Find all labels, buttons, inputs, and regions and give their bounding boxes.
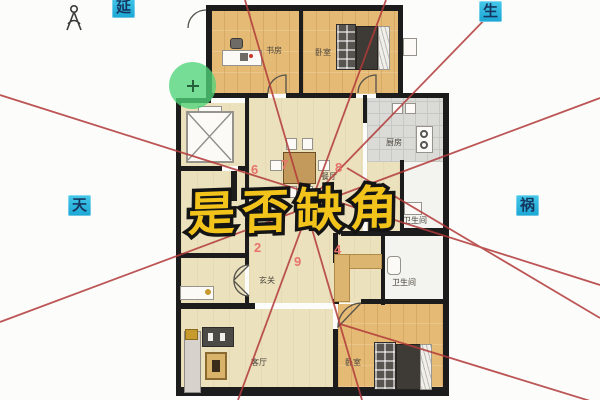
wardrobe [374, 342, 396, 390]
entry-counter [334, 254, 350, 302]
move-cross-icon [187, 80, 199, 92]
dining-chair [318, 160, 330, 171]
wall-segment [333, 329, 338, 392]
living-floor [181, 309, 333, 387]
bed-headboard [420, 344, 432, 390]
wall-segment [176, 98, 181, 308]
sector-number: 7 [281, 157, 288, 172]
wall-segment [299, 8, 303, 93]
shelf-unit [184, 331, 201, 393]
page-title: 是否缺角 [187, 168, 404, 245]
room-label-living: 客厅 [251, 358, 267, 367]
burner-icon [420, 141, 428, 149]
sector-number: 4 [334, 242, 341, 257]
wall-segment [286, 93, 356, 98]
north-figure-icon [62, 4, 86, 32]
kitchen-sink [405, 103, 416, 114]
wall-segment [206, 93, 268, 98]
room-label-bedroom-top: 卧室 [315, 48, 331, 57]
wall-segment [361, 299, 449, 304]
dining-chair [286, 138, 297, 150]
toilet [387, 256, 401, 275]
wall-segment [176, 303, 181, 396]
glass-icon [208, 333, 213, 341]
wall-segment [206, 5, 402, 11]
wardrobe [336, 24, 356, 70]
wall-segment [176, 303, 255, 309]
glass-icon [220, 333, 225, 341]
room-label-bath-upper: 卫生间 [403, 216, 427, 225]
ac-unit [403, 38, 417, 56]
door-arc [188, 10, 206, 28]
room-label-entry: 玄关 [259, 276, 275, 285]
room-label-bath-lower: 卫生间 [392, 278, 416, 287]
wall-segment [176, 253, 249, 258]
feng-shui-floorplan-canvas: 书房 卧室 厨房 卫生间 餐厅 玄关 卫生间 客厅 卧室 6 7 8 2 9 4… [0, 0, 600, 400]
cabinet [185, 329, 198, 340]
laptop-icon [240, 53, 248, 61]
dining-chair [302, 138, 313, 150]
bed [356, 26, 378, 70]
direction-tag-yan: 延 [112, 0, 135, 18]
move-handle[interactable] [169, 62, 216, 109]
direction-tag-sheng: 生 [479, 1, 502, 22]
sector-number: 9 [294, 254, 301, 269]
desk-chair [230, 38, 243, 49]
room-label-bedroom-bottom: 卧室 [345, 358, 361, 367]
wall-segment [381, 235, 385, 305]
room-label-study: 书房 [266, 46, 282, 55]
wall-segment [443, 95, 449, 395]
coffee-table [212, 360, 220, 372]
bed-headboard [378, 26, 390, 70]
room-label-kitchen: 厨房 [386, 138, 402, 147]
burner-icon [420, 130, 428, 138]
crossed-box [186, 111, 234, 163]
direction-tag-tian: 天 [68, 195, 91, 216]
wall-segment [176, 166, 222, 171]
wall-segment [376, 93, 449, 98]
direction-tag-huo: 祸 [516, 195, 539, 216]
wall-segment [363, 95, 367, 123]
kitchen-sink [392, 103, 403, 114]
bathroom-sink [404, 202, 422, 215]
sofa [202, 327, 234, 347]
desk-lamp-icon [249, 54, 253, 58]
bench-fixture-icon [205, 289, 211, 295]
